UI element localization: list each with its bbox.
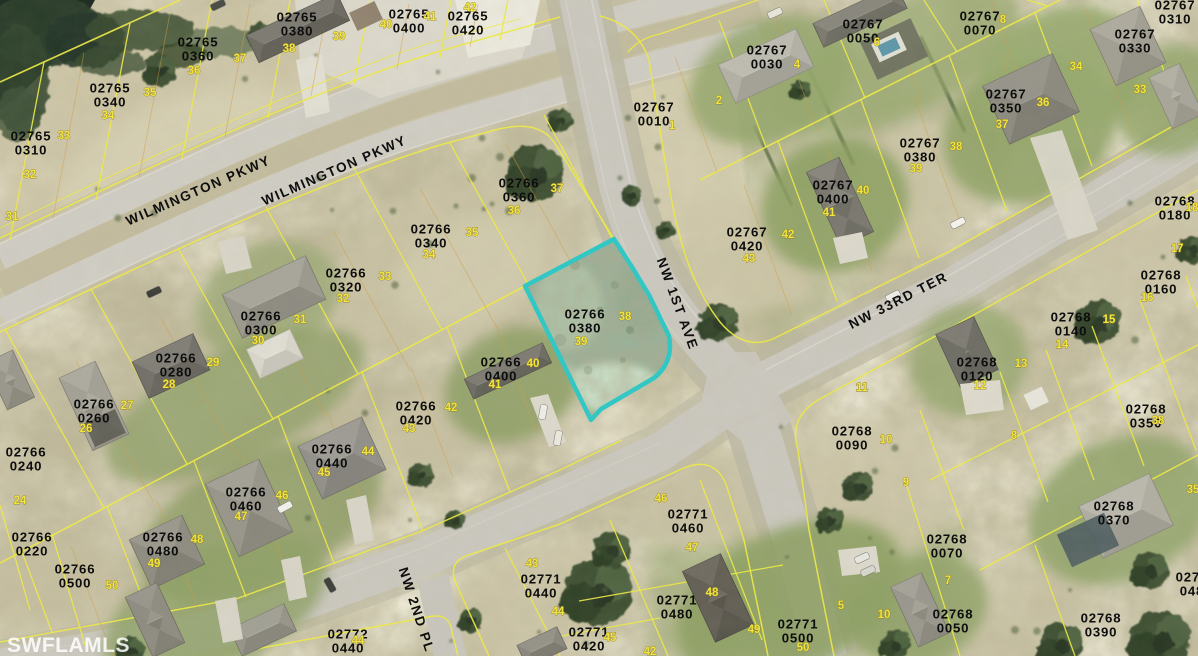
svg-text:43: 43 — [743, 253, 756, 265]
svg-text:0420: 0420 — [731, 239, 764, 254]
svg-text:02766: 02766 — [55, 562, 96, 577]
svg-text:0420: 0420 — [573, 639, 606, 654]
svg-text:02766: 02766 — [226, 485, 267, 500]
svg-text:02765: 02765 — [277, 10, 318, 25]
svg-text:0370: 0370 — [1098, 513, 1131, 528]
svg-text:38: 38 — [950, 141, 963, 153]
svg-text:42: 42 — [445, 402, 458, 414]
svg-text:0010: 0010 — [638, 114, 671, 129]
svg-text:02766: 02766 — [74, 397, 115, 412]
svg-text:32: 32 — [337, 293, 350, 305]
svg-text:02767: 02767 — [747, 43, 788, 58]
svg-text:40: 40 — [380, 19, 393, 31]
svg-text:02767: 02767 — [634, 100, 675, 115]
svg-text:0070: 0070 — [931, 546, 964, 561]
svg-text:4: 4 — [794, 59, 801, 71]
svg-text:45: 45 — [604, 632, 617, 644]
svg-text:0500: 0500 — [59, 576, 92, 591]
svg-text:0240: 0240 — [10, 459, 43, 474]
svg-text:37: 37 — [234, 53, 247, 65]
svg-text:24: 24 — [14, 495, 27, 507]
svg-text:02768: 02768 — [1141, 268, 1182, 283]
svg-text:48: 48 — [191, 534, 204, 546]
svg-text:02768: 02768 — [957, 355, 998, 370]
svg-text:41: 41 — [424, 11, 437, 23]
svg-text:43: 43 — [526, 558, 539, 570]
svg-text:02766: 02766 — [411, 222, 452, 237]
svg-text:0310: 0310 — [15, 143, 48, 158]
svg-text:02771: 02771 — [778, 617, 819, 632]
svg-text:02766: 02766 — [396, 399, 437, 414]
svg-text:0070: 0070 — [964, 23, 997, 38]
svg-text:44: 44 — [352, 635, 365, 647]
svg-text:02768: 02768 — [1081, 611, 1122, 626]
svg-text:7: 7 — [945, 575, 951, 587]
svg-text:02771: 02771 — [668, 507, 709, 522]
svg-text:02766: 02766 — [499, 176, 540, 191]
svg-text:39: 39 — [333, 31, 346, 43]
svg-text:40: 40 — [857, 185, 870, 197]
svg-text:16: 16 — [1141, 292, 1154, 304]
svg-text:36: 36 — [1037, 97, 1050, 109]
svg-text:38: 38 — [283, 43, 296, 55]
svg-text:42: 42 — [782, 229, 795, 241]
svg-text:02766: 02766 — [481, 355, 522, 370]
svg-text:0400: 0400 — [817, 192, 850, 207]
svg-text:44: 44 — [552, 606, 565, 618]
svg-text:15: 15 — [1103, 314, 1116, 326]
svg-text:33: 33 — [58, 130, 71, 142]
svg-text:34: 34 — [1070, 61, 1083, 73]
svg-text:1: 1 — [669, 120, 676, 132]
svg-text:44: 44 — [362, 446, 375, 458]
svg-text:0360: 0360 — [503, 190, 536, 205]
svg-text:34: 34 — [423, 249, 436, 261]
svg-text:8: 8 — [1000, 14, 1007, 26]
svg-text:0090: 0090 — [836, 438, 869, 453]
svg-text:47: 47 — [686, 542, 699, 554]
svg-text:0350: 0350 — [990, 101, 1023, 116]
svg-text:0310: 0310 — [1159, 12, 1192, 27]
svg-text:13: 13 — [1015, 358, 1028, 370]
svg-text:42: 42 — [644, 646, 657, 656]
svg-text:0330: 0330 — [1119, 41, 1152, 56]
svg-text:02768: 02768 — [832, 424, 873, 439]
svg-text:50: 50 — [106, 580, 119, 592]
svg-text:02766: 02766 — [241, 309, 282, 324]
svg-text:39: 39 — [910, 163, 923, 175]
svg-text:35: 35 — [1187, 484, 1198, 496]
svg-text:35: 35 — [466, 227, 479, 239]
svg-text:18: 18 — [1186, 202, 1198, 214]
svg-text:10: 10 — [880, 434, 893, 446]
svg-text:02767: 02767 — [986, 87, 1027, 102]
svg-text:6: 6 — [874, 37, 880, 49]
svg-text:02767: 02767 — [960, 9, 1001, 24]
svg-text:0390: 0390 — [1085, 625, 1118, 640]
svg-text:0360: 0360 — [182, 49, 215, 64]
svg-text:0480: 0480 — [147, 544, 180, 559]
svg-text:0380: 0380 — [281, 24, 314, 39]
svg-text:02766: 02766 — [156, 351, 197, 366]
svg-text:17: 17 — [1171, 243, 1184, 255]
svg-text:0220: 0220 — [16, 544, 49, 559]
svg-text:27: 27 — [121, 400, 134, 412]
svg-text:02767: 02767 — [1115, 27, 1156, 42]
svg-text:02766: 02766 — [143, 530, 184, 545]
svg-text:10: 10 — [878, 609, 891, 621]
svg-text:31: 31 — [6, 211, 19, 223]
svg-text:39: 39 — [575, 336, 588, 348]
svg-text:32: 32 — [24, 169, 37, 181]
svg-text:38: 38 — [619, 311, 632, 323]
svg-text:49: 49 — [748, 624, 761, 636]
svg-text:5: 5 — [838, 600, 845, 612]
svg-text:02768: 02768 — [1094, 499, 1135, 514]
svg-text:37: 37 — [551, 183, 564, 195]
svg-text:2: 2 — [716, 95, 722, 107]
svg-text:46: 46 — [276, 490, 289, 502]
svg-text:45: 45 — [318, 467, 331, 479]
svg-text:8: 8 — [1011, 430, 1018, 442]
svg-text:0050: 0050 — [937, 621, 970, 636]
svg-text:31: 31 — [294, 314, 307, 326]
svg-text:37: 37 — [996, 119, 1009, 131]
svg-text:02767: 02767 — [727, 225, 768, 240]
svg-text:02766: 02766 — [12, 530, 53, 545]
svg-text:50: 50 — [797, 642, 810, 654]
svg-text:0480: 0480 — [1180, 584, 1198, 599]
svg-text:02766: 02766 — [326, 266, 367, 281]
svg-text:0340: 0340 — [94, 95, 127, 110]
svg-text:02766: 02766 — [312, 442, 353, 457]
svg-text:48: 48 — [706, 587, 719, 599]
svg-text:12: 12 — [974, 380, 987, 392]
svg-text:33: 33 — [1134, 84, 1147, 96]
svg-text:SWFLAMLS: SWFLAMLS — [7, 634, 130, 656]
svg-text:36: 36 — [188, 65, 201, 77]
svg-text:29: 29 — [207, 357, 220, 369]
svg-text:34: 34 — [102, 110, 115, 122]
svg-text:0460: 0460 — [672, 521, 705, 536]
svg-text:02771: 02771 — [657, 593, 698, 608]
svg-text:0400: 0400 — [393, 21, 426, 36]
svg-text:47: 47 — [235, 511, 248, 523]
svg-text:02766: 02766 — [6, 445, 47, 460]
svg-text:02766: 02766 — [565, 307, 606, 322]
svg-text:0280: 0280 — [160, 365, 193, 380]
svg-text:02768: 02768 — [927, 532, 968, 547]
svg-text:02768: 02768 — [1051, 310, 1092, 325]
svg-text:49: 49 — [148, 558, 161, 570]
svg-text:0140: 0140 — [1055, 324, 1088, 339]
svg-text:38: 38 — [1152, 415, 1165, 427]
svg-text:02765: 02765 — [178, 35, 219, 50]
svg-text:0480: 0480 — [661, 607, 694, 622]
svg-text:36: 36 — [508, 205, 521, 217]
svg-text:0380: 0380 — [569, 321, 602, 336]
svg-text:35: 35 — [144, 87, 157, 99]
svg-text:0030: 0030 — [751, 57, 784, 72]
svg-text:02767: 02767 — [843, 17, 884, 32]
svg-text:02765: 02765 — [11, 129, 52, 144]
svg-text:46: 46 — [655, 493, 668, 505]
svg-text:02767: 02767 — [900, 136, 941, 151]
svg-text:9: 9 — [903, 477, 909, 489]
svg-text:02765: 02765 — [90, 81, 131, 96]
svg-text:41: 41 — [489, 379, 502, 391]
svg-text:0420: 0420 — [452, 23, 485, 38]
svg-text:02767: 02767 — [813, 178, 854, 193]
svg-text:02771: 02771 — [521, 572, 562, 587]
svg-text:41: 41 — [823, 207, 836, 219]
svg-text:30: 30 — [252, 335, 265, 347]
svg-text:40: 40 — [527, 358, 540, 370]
svg-text:11: 11 — [856, 382, 869, 394]
svg-text:02768: 02768 — [933, 607, 974, 622]
svg-text:14: 14 — [1056, 339, 1069, 351]
svg-text:02771: 02771 — [1176, 570, 1198, 585]
svg-text:42: 42 — [464, 2, 477, 14]
svg-text:26: 26 — [80, 423, 93, 435]
svg-text:28: 28 — [163, 379, 176, 391]
svg-text:0440: 0440 — [525, 586, 558, 601]
svg-text:33: 33 — [379, 271, 392, 283]
svg-text:43: 43 — [403, 423, 416, 435]
